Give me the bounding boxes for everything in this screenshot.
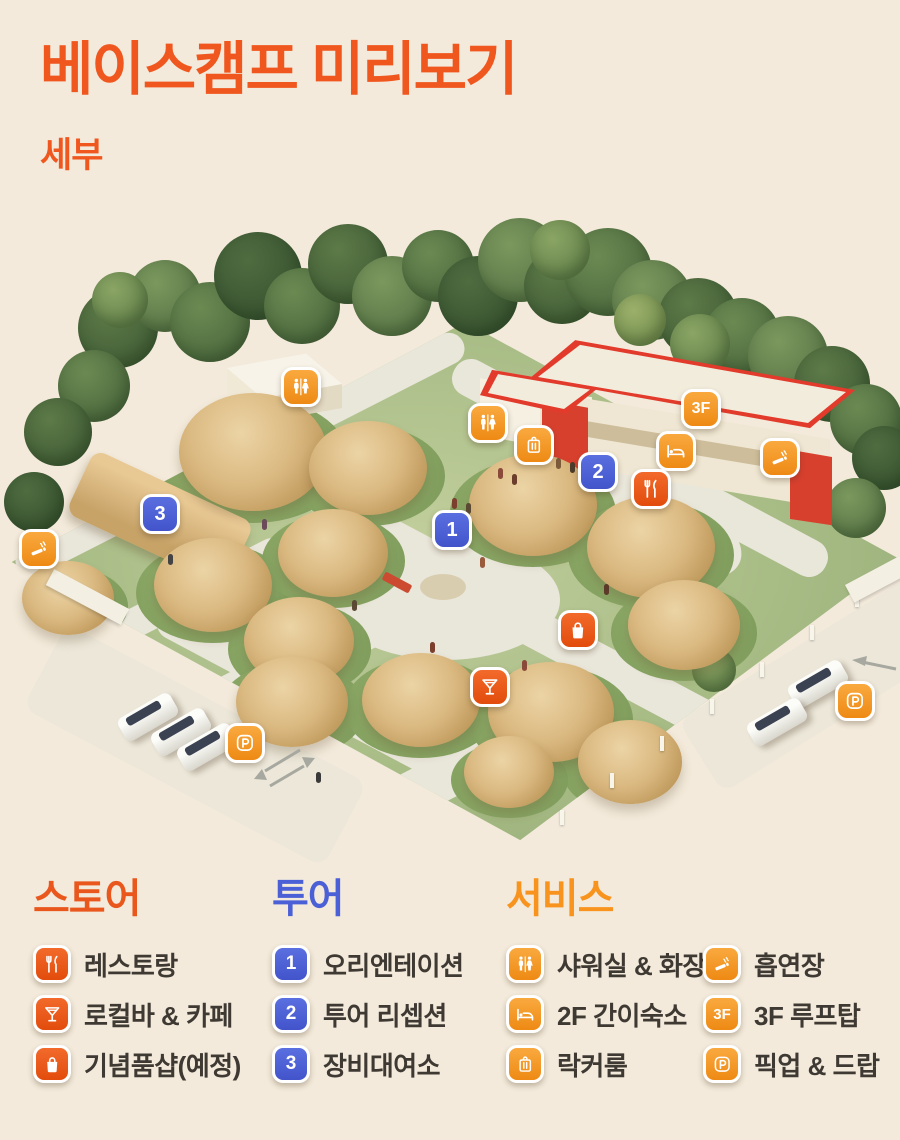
marker-rooftop-3f: 3F bbox=[681, 389, 721, 429]
person bbox=[480, 557, 485, 568]
smoking-icon bbox=[19, 529, 59, 569]
locker-icon bbox=[514, 425, 554, 465]
person bbox=[522, 660, 527, 671]
page-title: 베이스캠프 미리보기 bbox=[40, 40, 516, 101]
legend-item-label: 오리엔테이션 bbox=[323, 946, 464, 983]
hut bbox=[628, 580, 740, 670]
marker-orientation: 1 bbox=[432, 510, 472, 550]
bed-icon bbox=[656, 431, 696, 471]
bed-icon bbox=[506, 995, 544, 1033]
legend-item: 기념품샵(예정) bbox=[33, 1039, 241, 1089]
parking-icon bbox=[225, 723, 265, 763]
badge-label: 2 bbox=[592, 461, 603, 484]
badge-label: 2 bbox=[286, 1003, 297, 1025]
marker-local-bar-cafe bbox=[470, 667, 510, 707]
legend-items-store: 레스토랑로컬바 & 카페기념품샵(예정) bbox=[33, 939, 241, 1089]
bag-icon bbox=[558, 610, 598, 650]
legend-item: 락커룸 bbox=[506, 1039, 703, 1089]
badge-label: 3 bbox=[286, 1053, 297, 1075]
person bbox=[570, 462, 575, 473]
gravel-circle bbox=[420, 574, 466, 600]
hut bbox=[278, 509, 388, 597]
legend-items-tour: 1오리엔테이션2투어 리셉션3장비대여소 bbox=[272, 939, 464, 1089]
legend-item: 레스토랑 bbox=[33, 939, 241, 989]
person bbox=[452, 498, 457, 509]
badge-label: 1 bbox=[446, 519, 457, 542]
cocktail-icon bbox=[470, 667, 510, 707]
marker-souvenir-shop bbox=[558, 610, 598, 650]
legend-heading-tour: 투어 bbox=[272, 866, 464, 924]
legend-item-label: 락커룸 bbox=[557, 1046, 627, 1083]
tree bbox=[24, 398, 92, 466]
marker-shower-toilet-2 bbox=[468, 403, 508, 443]
marker-equipment-rental: 3 bbox=[140, 494, 180, 534]
legend-item-label: 흡연장 bbox=[754, 946, 824, 983]
marker-restaurant bbox=[631, 469, 671, 509]
legend-item: 3F3F 루프탑 bbox=[703, 989, 879, 1039]
restroom-icon bbox=[468, 403, 508, 443]
badge-3F: 3F bbox=[681, 389, 721, 429]
legend-item: 3장비대여소 bbox=[272, 1039, 464, 1089]
legend-items-service: 샤워실 & 화장실2F 간이숙소락커룸흡연장3F3F 루프탑픽업 & 드랍 bbox=[506, 939, 879, 1089]
hut bbox=[362, 653, 480, 747]
person bbox=[512, 474, 517, 485]
badge-label: 3F bbox=[692, 400, 711, 418]
legend-item-label: 2F 간이숙소 bbox=[557, 996, 687, 1033]
bag-icon bbox=[33, 1045, 71, 1083]
hut bbox=[179, 393, 327, 511]
locker-icon bbox=[506, 1045, 544, 1083]
restaurant-icon bbox=[33, 945, 71, 983]
badge-1: 1 bbox=[272, 945, 310, 983]
badge-label: 3 bbox=[154, 503, 165, 526]
fence-post bbox=[810, 625, 814, 640]
legend-item-label: 기념품샵(예정) bbox=[84, 1046, 241, 1083]
person bbox=[604, 584, 609, 595]
legend-column-tour: 투어 1오리엔테이션2투어 리셉션3장비대여소 bbox=[272, 866, 464, 1089]
legend-item: 2F 간이숙소 bbox=[506, 989, 703, 1039]
marker-pickup-drop-west bbox=[225, 723, 265, 763]
fence-post bbox=[560, 810, 564, 825]
legend-heading-store: 스토어 bbox=[33, 866, 241, 924]
marker-hostel-2f bbox=[656, 431, 696, 471]
restroom-icon bbox=[506, 945, 544, 983]
fence-post bbox=[710, 699, 714, 714]
badge-3: 3 bbox=[272, 1045, 310, 1083]
marker-smoking-area-east bbox=[760, 438, 800, 478]
fence-post bbox=[760, 662, 764, 677]
hut bbox=[309, 421, 427, 515]
legend-item-label: 레스토랑 bbox=[84, 946, 178, 983]
parking-icon bbox=[703, 1045, 741, 1083]
parking-icon bbox=[835, 681, 875, 721]
marker-shower-toilet-1 bbox=[281, 367, 321, 407]
badge-3: 3 bbox=[140, 494, 180, 534]
fence-post bbox=[660, 736, 664, 751]
legend-item-label: 3F 루프탑 bbox=[754, 996, 860, 1033]
cocktail-icon bbox=[33, 995, 71, 1033]
person bbox=[168, 554, 173, 565]
basecamp-preview-poster: 베이스캠프 미리보기 세부 bbox=[0, 0, 900, 1140]
page-subtitle: 세부 bbox=[40, 127, 516, 178]
marker-pickup-drop-east bbox=[835, 681, 875, 721]
marker-locker-room bbox=[514, 425, 554, 465]
restaurant-icon bbox=[631, 469, 671, 509]
hut bbox=[578, 720, 682, 803]
legend-heading-service: 서비스 bbox=[506, 866, 879, 924]
tree bbox=[4, 472, 64, 532]
smoking-icon bbox=[703, 945, 741, 983]
legend-column-store: 스토어 레스토랑로컬바 & 카페기념품샵(예정) bbox=[33, 866, 241, 1089]
legend-item-label: 픽업 & 드랍 bbox=[754, 1046, 879, 1083]
legend-item: 픽업 & 드랍 bbox=[703, 1039, 879, 1089]
person bbox=[430, 642, 435, 653]
person bbox=[556, 458, 561, 469]
person bbox=[262, 519, 267, 530]
badge-3F: 3F bbox=[703, 995, 741, 1033]
hut bbox=[464, 736, 554, 808]
legend-item-label: 로컬바 & 카페 bbox=[84, 996, 233, 1033]
legend-item: 2투어 리셉션 bbox=[272, 989, 464, 1039]
legend-item-label: 투어 리셉션 bbox=[323, 996, 447, 1033]
badge-2: 2 bbox=[578, 452, 618, 492]
legend-column-service: 서비스 샤워실 & 화장실2F 간이숙소락커룸흡연장3F3F 루프탑픽업 & 드… bbox=[506, 866, 879, 1089]
marker-smoking-area-west bbox=[19, 529, 59, 569]
person bbox=[316, 772, 321, 783]
person bbox=[498, 468, 503, 479]
legend-item: 로컬바 & 카페 bbox=[33, 989, 241, 1039]
badge-1: 1 bbox=[432, 510, 472, 550]
person bbox=[352, 600, 357, 611]
legend-item: 1오리엔테이션 bbox=[272, 939, 464, 989]
tree bbox=[92, 272, 148, 328]
tree bbox=[530, 220, 590, 280]
legend-item: 샤워실 & 화장실 bbox=[506, 939, 703, 989]
fence-post bbox=[610, 773, 614, 788]
header: 베이스캠프 미리보기 세부 bbox=[40, 40, 516, 178]
badge-label: 3F bbox=[713, 1006, 731, 1023]
restroom-icon bbox=[281, 367, 321, 407]
marker-tour-reception: 2 bbox=[578, 452, 618, 492]
smoking-icon bbox=[760, 438, 800, 478]
badge-2: 2 bbox=[272, 995, 310, 1033]
legend-item: 흡연장 bbox=[703, 939, 879, 989]
badge-label: 1 bbox=[286, 953, 297, 975]
legend-item-label: 장비대여소 bbox=[323, 1046, 440, 1083]
